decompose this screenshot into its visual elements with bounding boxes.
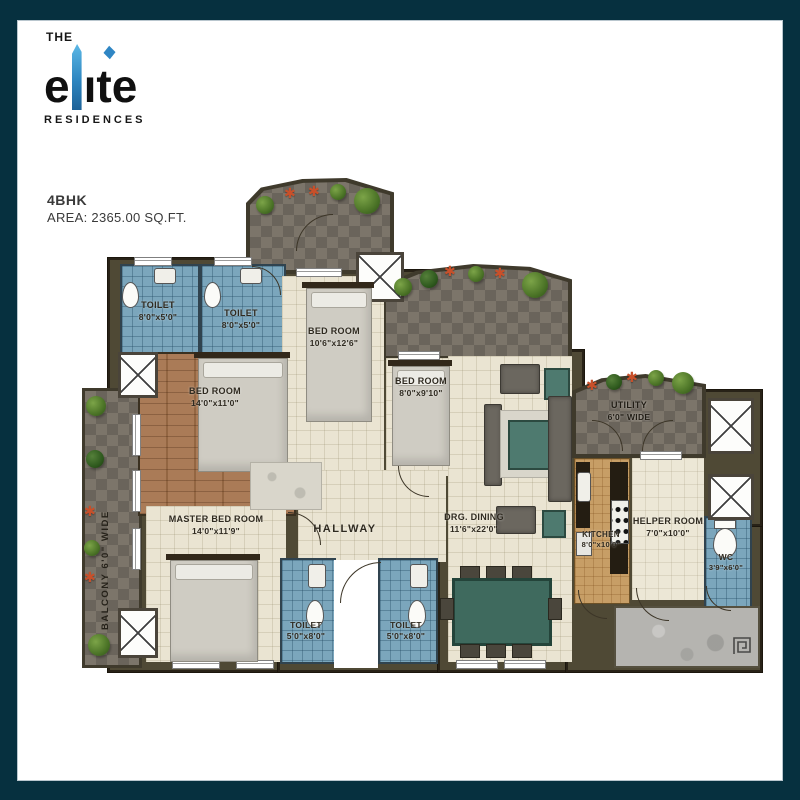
- plant-icon: [468, 266, 484, 282]
- window-symbol: [134, 257, 172, 266]
- room-label: HALLWAY: [300, 522, 390, 536]
- sink-symbol: [577, 472, 591, 502]
- room-dims: 7'0"x10'0": [630, 528, 706, 539]
- room-name: BED ROOM: [308, 326, 360, 336]
- room-label: BALCONY 6'0" WIDE: [100, 440, 111, 630]
- room-name: BED ROOM: [395, 376, 447, 386]
- plant-icon: [648, 370, 664, 386]
- room-dims: 8'0"x5'0": [200, 320, 282, 331]
- room-name: HELPER ROOM: [633, 516, 703, 526]
- room-dims: 3'9"x6'0": [704, 563, 748, 573]
- plant-icon: [354, 188, 380, 214]
- floorplan-page: { "logo": { "the": "THE", "elite_prefix"…: [0, 0, 800, 800]
- flower-icon: [284, 186, 296, 200]
- room-label: TOILET5'0"x8'0": [280, 620, 332, 642]
- room-label: MASTER BED ROOM14'0"x11'9": [150, 514, 282, 537]
- room-dims: 14'0"x11'0": [150, 398, 280, 409]
- unit-info: 4BHK AREA: 2365.00 SQ.FT.: [47, 192, 187, 225]
- side-table-symbol: [542, 510, 566, 538]
- room-name: HALLWAY: [313, 523, 376, 535]
- room-label: TOILET8'0"x5'0": [120, 300, 196, 323]
- sofa-symbol: [548, 396, 572, 502]
- sink-symbol: [308, 564, 326, 588]
- flower-icon: [444, 264, 456, 278]
- flower-icon: [84, 504, 96, 518]
- room-name: TOILET: [390, 620, 422, 630]
- room-name: KITCHEN: [582, 530, 620, 539]
- unit-type-text: 4BHK: [47, 192, 187, 208]
- room-name: TOILET: [290, 620, 322, 630]
- pillow-symbol: [203, 362, 283, 378]
- flower-icon: [494, 266, 506, 280]
- elite-residences-logo: THE eıte RESIDENCES: [44, 30, 194, 126]
- chair-symbol: [512, 644, 532, 658]
- coffee-table-symbol: [508, 420, 550, 470]
- logo-elite-suffix: ıte: [84, 60, 138, 112]
- tower-icon: [72, 44, 82, 110]
- plant-icon: [672, 372, 694, 394]
- chair-symbol: [486, 644, 506, 658]
- room-name: WC: [719, 552, 734, 562]
- window-symbol: [132, 470, 141, 512]
- shaft-x-right-lower-icon: [708, 474, 754, 520]
- toilet-fixture-symbol: [204, 282, 221, 308]
- plant-icon: [420, 270, 438, 288]
- logo-residences-text: RESIDENCES: [44, 114, 194, 126]
- room-dims: 5'0"x8'0": [280, 631, 332, 642]
- sink-symbol: [240, 268, 262, 284]
- plant-icon: [88, 634, 110, 656]
- window-symbol: [132, 528, 141, 570]
- plant-icon: [84, 540, 100, 556]
- room-dims: 8'0"x5'0": [120, 312, 196, 323]
- room-name: TOILET: [141, 300, 175, 310]
- bed-symbol: [198, 358, 288, 472]
- window-symbol: [398, 351, 440, 360]
- shaft-x-right-upper-icon: [708, 398, 754, 454]
- window-symbol: [132, 414, 141, 456]
- logo-elite-prefix: e: [44, 60, 70, 112]
- room-dims: 6'0" WIDE: [584, 412, 674, 423]
- plant-icon: [86, 396, 106, 416]
- pillow-symbol: [175, 564, 253, 580]
- room-label: BED ROOM8'0"x9'10": [386, 376, 456, 399]
- flower-icon: [586, 378, 598, 392]
- rug-symbol: [250, 462, 322, 510]
- bed-symbol: [170, 560, 258, 662]
- room-name: MASTER BED ROOM: [169, 514, 264, 524]
- plant-icon: [256, 196, 274, 214]
- spiral-mark-icon: [732, 636, 752, 656]
- window-symbol: [504, 660, 546, 669]
- room-label: BED ROOM14'0"x11'0": [150, 386, 280, 409]
- window-symbol: [456, 660, 498, 669]
- room-dims: 14'0"x11'9": [150, 526, 282, 537]
- shaft-x-balcony-icon: [118, 608, 158, 658]
- blue-diamond-icon: [103, 46, 115, 59]
- room-label: KITCHEN8'0"x10'0": [574, 530, 628, 550]
- chair-symbol: [440, 598, 454, 620]
- plant-icon: [330, 184, 346, 200]
- room-dims: 8'0"x10'0": [574, 540, 628, 550]
- room-name: BED ROOM: [189, 386, 241, 396]
- flower-icon: [84, 570, 96, 584]
- armchair-symbol: [500, 364, 540, 394]
- dining-table-symbol: [452, 578, 552, 646]
- logo-the-text: THE: [46, 30, 194, 44]
- room-dims: 10'6"x12'6": [284, 338, 384, 349]
- room-name: UTILITY: [611, 400, 647, 410]
- room-label: WC3'9"x6'0": [704, 552, 748, 573]
- room-label: TOILET5'0"x8'0": [378, 620, 434, 642]
- room-dims: 11'6"x22'0": [442, 524, 506, 535]
- plant-icon: [522, 272, 548, 298]
- flower-icon: [308, 184, 320, 198]
- chair-symbol: [460, 644, 480, 658]
- logo-elite-wordmark: eıte: [44, 44, 194, 110]
- room-dims: 8'0"x9'10": [386, 388, 456, 399]
- pillow-symbol: [311, 292, 367, 308]
- room-name: TOILET: [224, 308, 258, 318]
- window-symbol: [640, 451, 682, 460]
- chair-symbol: [548, 598, 562, 620]
- room-name: DRG. DINING: [444, 512, 504, 522]
- window-symbol: [214, 257, 252, 266]
- room-name: BALCONY 6'0" WIDE: [100, 510, 111, 630]
- flower-icon: [626, 370, 638, 384]
- sink-symbol: [410, 564, 428, 588]
- room-label: DRG. DINING11'6"x22'0": [442, 512, 506, 535]
- room-label: BED ROOM10'6"x12'6": [284, 326, 384, 349]
- sink-symbol: [154, 268, 176, 284]
- window-symbol: [296, 268, 342, 277]
- unit-area-text: AREA: 2365.00 SQ.FT.: [47, 210, 187, 225]
- room-label: UTILITY6'0" WIDE: [584, 400, 674, 423]
- plant-icon: [606, 374, 622, 390]
- room-label: HELPER ROOM7'0"x10'0": [630, 516, 706, 539]
- room-dims: 5'0"x8'0": [378, 631, 434, 642]
- bed-symbol: [306, 288, 372, 422]
- room-label: TOILET8'0"x5'0": [200, 308, 282, 331]
- plant-icon: [394, 278, 412, 296]
